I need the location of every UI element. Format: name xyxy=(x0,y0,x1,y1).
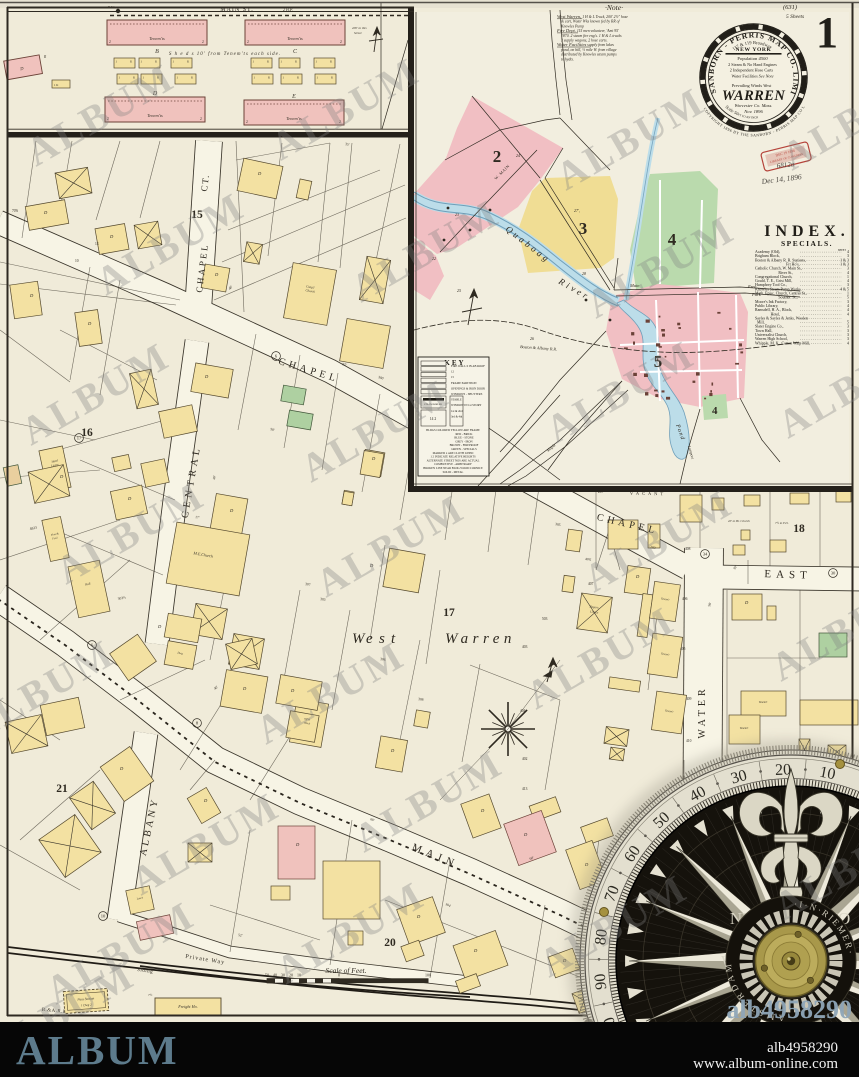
svg-text:1870. 2 steam fire eng's.: 1870. 2 steam fire eng's. 1 H & L trucks xyxy=(561,34,622,38)
svg-text:410: 410 xyxy=(686,739,692,743)
svg-text:28: 28 xyxy=(582,271,586,276)
svg-text:OPENINGS & IRON DOOR: OPENINGS & IRON DOOR xyxy=(451,386,485,390)
svg-text:2: 2 xyxy=(109,40,111,44)
svg-text:25: 25 xyxy=(457,288,461,293)
svg-text:S h e d s 10' from Tenem't: S h e d s 10' from Tenem'ts each side. xyxy=(169,52,281,57)
svg-text:alb4958290: alb4958290 xyxy=(726,995,852,1024)
svg-text:2: 2 xyxy=(200,117,202,121)
svg-text:2 Steam & No Hand Engines: 2 Steam & No Hand Engines xyxy=(728,62,777,67)
svg-text:2: 2 xyxy=(246,120,248,124)
svg-text:90: 90 xyxy=(592,973,611,991)
svg-text:INDEX.: INDEX. xyxy=(764,223,850,240)
svg-text:404: 404 xyxy=(520,709,526,713)
svg-text:SPECIALS.: SPECIALS. xyxy=(781,239,833,248)
svg-text:www.album-online.com: www.album-online.com xyxy=(693,1056,838,1072)
svg-text:WINDOWS - SHUTTERS: WINDOWS - SHUTTERS xyxy=(451,392,483,396)
svg-text:Water Facilities See Note: Water Facilities See Note xyxy=(731,74,773,79)
svg-text:7½ to F.D.: 7½ to F.D. xyxy=(775,521,789,525)
svg-text:Tenem'ts: Tenem'ts xyxy=(149,36,165,41)
svg-text:200' to this: 200' to this xyxy=(352,26,367,30)
svg-text:Population 4500: Population 4500 xyxy=(737,56,768,61)
svg-text:20: 20 xyxy=(384,937,396,949)
svg-text:(631): (631) xyxy=(783,4,797,11)
svg-text:17: 17 xyxy=(77,436,82,441)
svg-text:Water Facilities supply f: Water Facilities supply from lakes xyxy=(557,42,614,47)
svg-text:50: 50 xyxy=(265,973,269,978)
svg-text:0: 0 xyxy=(338,973,340,978)
svg-text:413: 413 xyxy=(522,787,528,791)
svg-text:405: 405 xyxy=(680,647,686,651)
svg-text:SOLID - METAL: SOLID - METAL xyxy=(443,470,464,474)
svg-text:402: 402 xyxy=(522,757,528,761)
svg-text:10: 10 xyxy=(75,259,79,263)
svg-text:34: 34 xyxy=(703,552,708,557)
svg-text:40: 40 xyxy=(273,973,277,978)
svg-text:WATER: WATER xyxy=(697,685,708,738)
svg-text:Tenem'ts: Tenem'ts xyxy=(147,113,163,118)
svg-text:18: 18 xyxy=(793,523,805,535)
svg-text:Nov. 1896: Nov. 1896 xyxy=(743,109,763,114)
svg-text:2: 2 xyxy=(340,40,342,44)
svg-text:SHEET: SHEET xyxy=(838,249,846,252)
svg-text:10: 10 xyxy=(101,914,106,919)
svg-text:distributed by Knowles stea: distributed by Knowles steam pumps xyxy=(561,53,617,57)
svg-text:E: E xyxy=(291,94,296,100)
svg-text:403: 403 xyxy=(522,645,528,649)
svg-text:Warren: Warren xyxy=(445,631,516,647)
svg-text:Tenem't: Tenem't xyxy=(759,701,768,704)
svg-text:NEW YORK: NEW YORK xyxy=(735,47,771,53)
svg-text:26: 26 xyxy=(530,336,534,341)
svg-text:4: 4 xyxy=(847,341,849,345)
svg-text:7½: 7½ xyxy=(148,993,153,997)
svg-text:2: 2 xyxy=(493,147,502,166)
svg-text:Street: Street xyxy=(354,31,362,35)
svg-text:1: 1 xyxy=(816,8,838,57)
svg-text:ALBUM: ALBUM xyxy=(16,1027,179,1073)
svg-text:70'6: 70'6 xyxy=(12,209,18,213)
svg-text:21: 21 xyxy=(56,783,68,795)
svg-text:2 Independent Hose Carts: 2 Independent Hose Carts xyxy=(730,68,774,73)
svg-text:30: 30 xyxy=(831,571,836,576)
svg-text:WARREN: WARREN xyxy=(722,88,786,104)
svg-text:Worcester Co. Mass.: Worcester Co. Mass. xyxy=(735,103,773,108)
svg-text:13: 13 xyxy=(95,242,99,246)
svg-text:Freight Ho.: Freight Ho. xyxy=(177,1004,198,1009)
svg-text:100: 100 xyxy=(425,973,431,978)
svg-text:Tenem'ts: Tenem'ts xyxy=(287,36,303,41)
svg-text:2: 2 xyxy=(202,40,204,44)
svg-text:CT.: CT. xyxy=(199,173,211,192)
svg-text:Tenem't: Tenem't xyxy=(740,727,749,730)
svg-text:409: 409 xyxy=(686,697,692,701)
svg-text:10: 10 xyxy=(818,764,837,784)
svg-text:FRAME PARTITION: FRAME PARTITION xyxy=(451,381,477,385)
svg-text:2: 2 xyxy=(247,40,249,44)
svg-text:to hydts.: to hydts. xyxy=(561,57,574,61)
svg-text:4: 4 xyxy=(712,405,718,417)
svg-text:alb4958290: alb4958290 xyxy=(767,1040,838,1056)
svg-text:3rd & 4th: 3rd & 4th xyxy=(451,414,463,418)
svg-text:5 Sheets: 5 Sheets xyxy=(786,14,804,20)
svg-text:17: 17 xyxy=(443,607,455,619)
svg-text:24: 24 xyxy=(516,153,520,158)
svg-text:3: 3 xyxy=(579,219,588,238)
svg-text:4: 4 xyxy=(847,312,849,316)
svg-text:406: 406 xyxy=(682,597,688,601)
svg-text:FIRE WALL 6 IN AB ROOF: FIRE WALL 6 IN AB ROOF xyxy=(451,364,485,368)
svg-text:503: 503 xyxy=(542,617,548,621)
svg-text:EAST: EAST xyxy=(764,568,812,582)
svg-text:·Note·: ·Note· xyxy=(605,3,623,12)
